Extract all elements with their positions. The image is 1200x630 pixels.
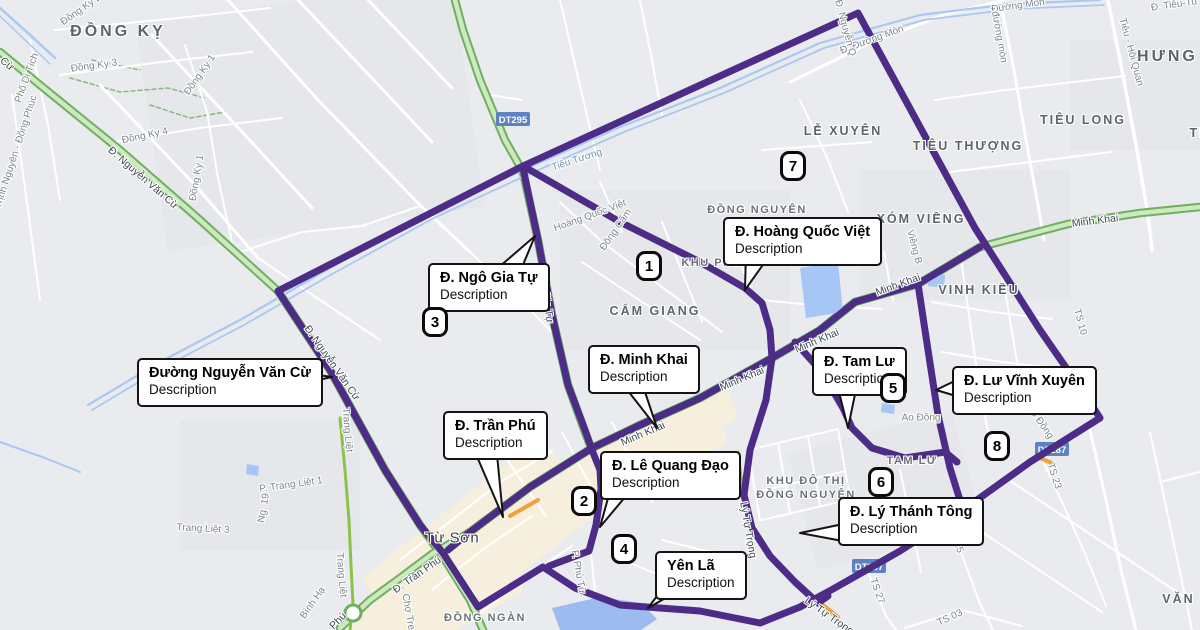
route-marker-2[interactable]: 2: [571, 486, 597, 516]
route-marker-1[interactable]: 1: [636, 251, 662, 281]
route-marker-6[interactable]: 6: [868, 467, 894, 497]
map-canvas[interactable]: DT295DT287DT287 ĐỒNG KỴLỄ XUYÊNTIÊU THƯỢ…: [0, 0, 1200, 630]
route-marker-4[interactable]: 4: [611, 534, 637, 564]
route-marker-8[interactable]: 8: [984, 431, 1010, 461]
route-marker-5[interactable]: 5: [880, 373, 906, 403]
route-marker-3[interactable]: 3: [422, 307, 448, 337]
route-marker-7[interactable]: 7: [780, 151, 806, 181]
route-markers-layer: 12345678: [0, 0, 1200, 630]
